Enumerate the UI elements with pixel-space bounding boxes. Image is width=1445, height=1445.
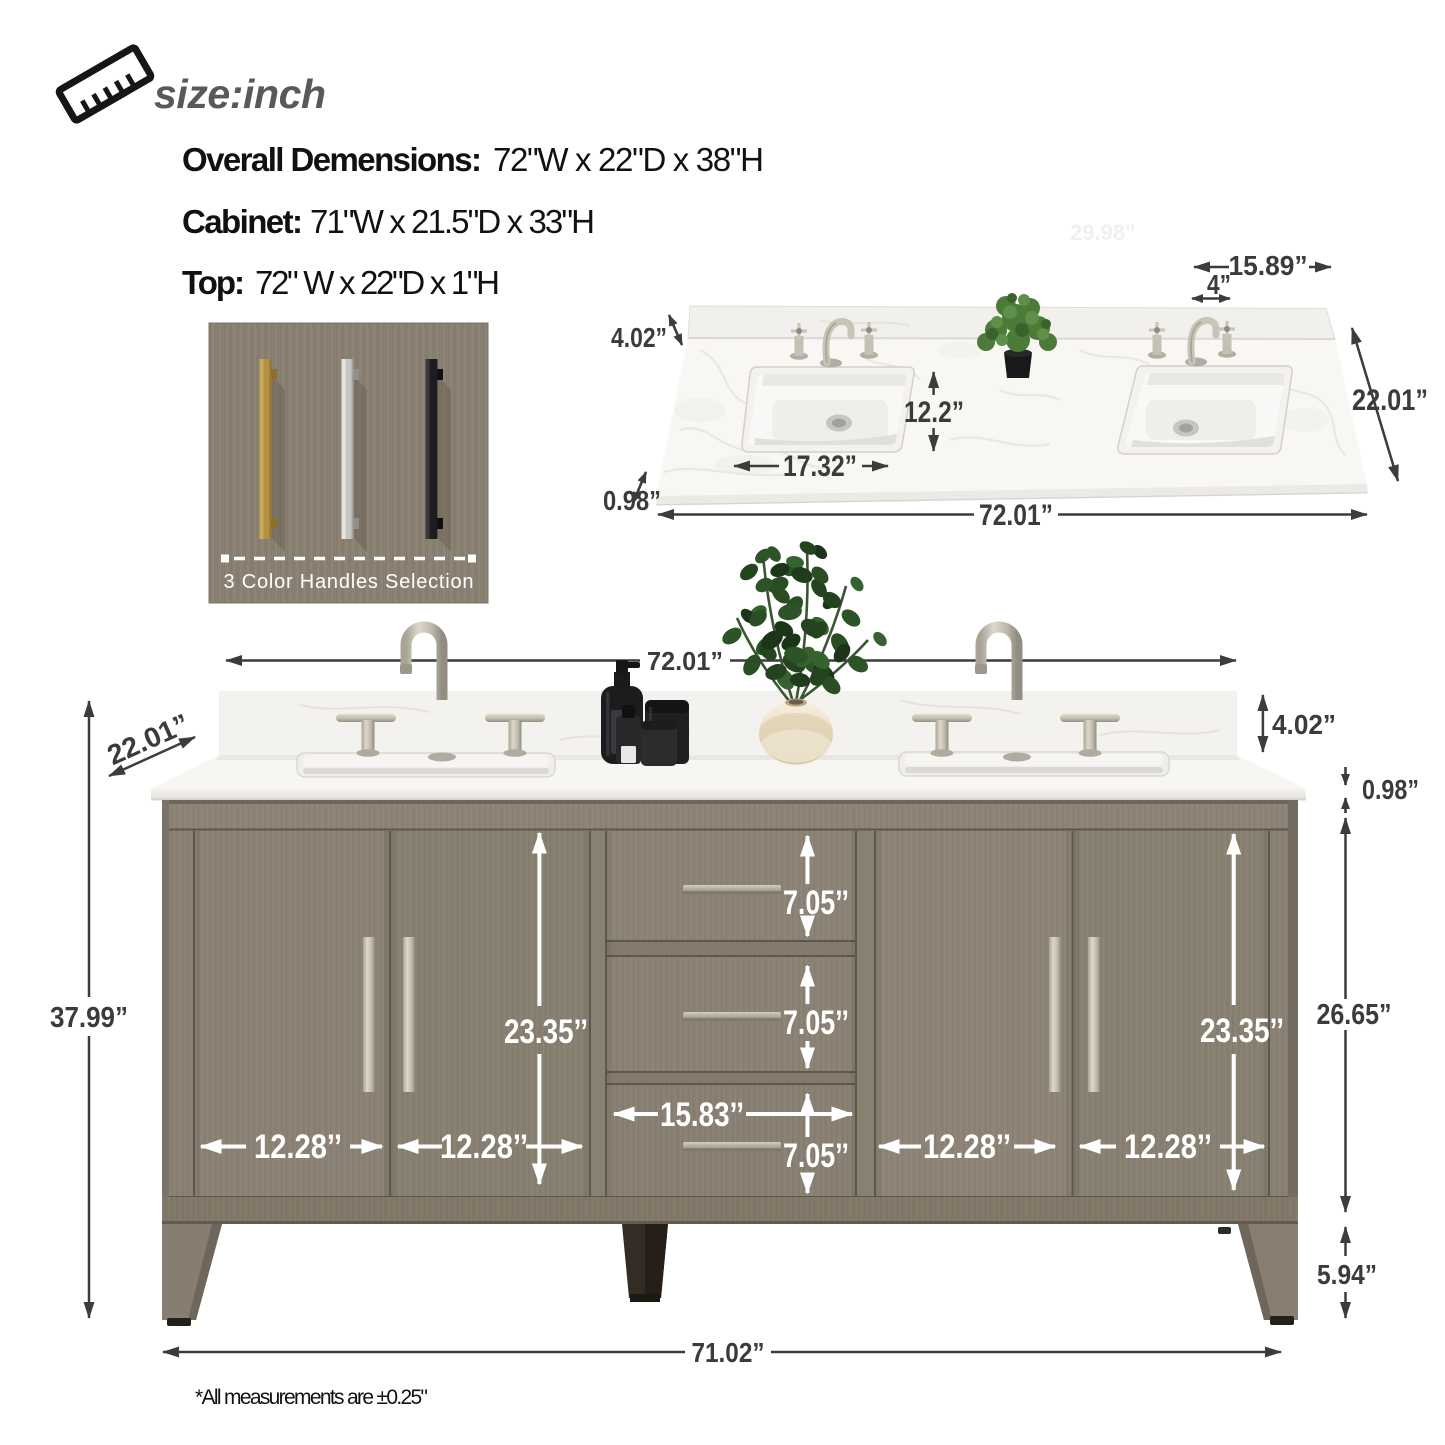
svg-text:23.35’’: 23.35’’ — [1200, 1012, 1284, 1050]
svg-text:72.01”: 72.01” — [647, 646, 723, 676]
svg-text:12.28’’: 12.28’’ — [254, 1128, 342, 1166]
svg-text:12.28’’: 12.28’’ — [923, 1128, 1011, 1166]
svg-text:Top:: Top: — [182, 264, 245, 301]
svg-text:12.28’’: 12.28’’ — [1124, 1128, 1212, 1166]
svg-text:26.65”: 26.65” — [1317, 999, 1392, 1031]
svg-text:7.05’’: 7.05’’ — [783, 884, 849, 922]
svg-text:Cabinet:: Cabinet: — [182, 203, 303, 240]
svg-text:4”: 4” — [1207, 269, 1231, 300]
svg-text:71.02”: 71.02” — [692, 1337, 765, 1368]
svg-text:72.01”: 72.01” — [979, 499, 1053, 532]
svg-text:4.02”: 4.02” — [1272, 709, 1336, 740]
svg-text:37.99”: 37.99” — [50, 1002, 128, 1034]
svg-text:15.89”: 15.89” — [1229, 250, 1308, 281]
svg-text:Overall Demensions:: Overall Demensions: — [182, 141, 482, 178]
svg-text:12.28’’: 12.28’’ — [440, 1128, 528, 1166]
svg-text:15.83’’: 15.83’’ — [660, 1096, 744, 1134]
svg-text:72" W x 22"D x 1"H: 72" W x 22"D x 1"H — [255, 264, 500, 301]
svg-text:72"W x 22"D x 38"H: 72"W x 22"D x 38"H — [493, 141, 764, 178]
svg-text:22.01”: 22.01” — [1352, 384, 1428, 417]
svg-text:12.2”: 12.2” — [904, 396, 964, 429]
svg-text:size:inch: size:inch — [154, 71, 326, 117]
svg-text:0.98”: 0.98” — [603, 485, 661, 516]
svg-text:*All measurements are ±0.25": *All measurements are ±0.25" — [195, 1386, 428, 1409]
svg-text:7.05’’: 7.05’’ — [783, 1137, 849, 1175]
svg-text:3 Color Handles Selection: 3 Color Handles Selection — [224, 571, 474, 593]
svg-text:5.94”: 5.94” — [1317, 1259, 1377, 1290]
svg-text:4.02”: 4.02” — [611, 322, 667, 353]
svg-text:71"W x 21.5"D x 33"H: 71"W x 21.5"D x 33"H — [310, 203, 595, 240]
svg-text:0.98”: 0.98” — [1362, 774, 1419, 805]
svg-text:23.35’’: 23.35’’ — [504, 1013, 588, 1051]
svg-text:7.05’’: 7.05’’ — [783, 1004, 849, 1042]
svg-text:29.98": 29.98" — [1070, 220, 1135, 245]
svg-text:17.32”: 17.32” — [783, 450, 857, 483]
